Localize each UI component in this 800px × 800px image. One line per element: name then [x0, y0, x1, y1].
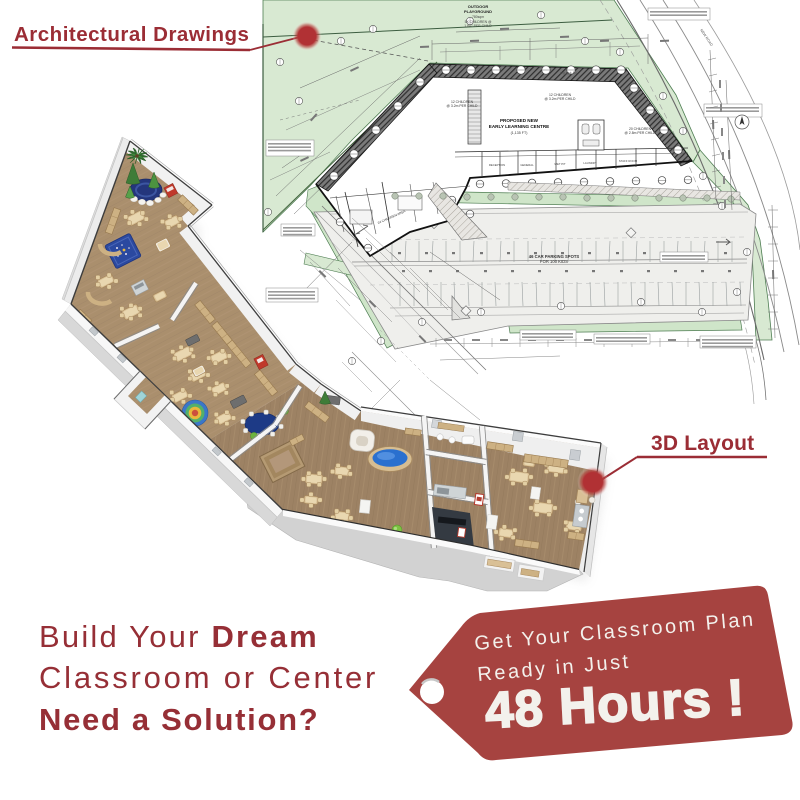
svg-text:WET PIT: WET PIT [554, 162, 566, 166]
svg-text:PRAM AV: PRAM AV [560, 70, 578, 76]
svg-text:Build Your Dream: Build Your Dream [39, 619, 319, 654]
svg-text:PROPOSED NEW: PROPOSED NEW [500, 118, 539, 123]
svg-text:Classroom or Center: Classroom or Center [39, 660, 378, 695]
svg-text:1,847 PER CHILD: 1,847 PER CHILD [464, 24, 492, 28]
svg-text:@ 3.2m PER CHILD: @ 3.2m PER CHILD [447, 104, 479, 108]
svg-text:(1,135 FT): (1,135 FT) [511, 131, 528, 135]
svg-text:Architectural Drawings: Architectural Drawings [14, 23, 249, 46]
svg-text:NEW ROAD: NEW ROAD [699, 28, 714, 47]
svg-text:3D Layout: 3D Layout [651, 432, 754, 455]
svg-text:@ 3.2m PER CHILD: @ 3.2m PER CHILD [545, 97, 577, 101]
svg-text:FOR 100 KIDS: FOR 100 KIDS [540, 259, 568, 264]
svg-text:RECEPTION: RECEPTION [489, 163, 505, 167]
svg-text:Need a Solution?: Need a Solution? [39, 702, 319, 737]
svg-text:PLAYGROUND: PLAYGROUND [464, 9, 492, 14]
svg-text:EARLY LEARNING CENTRE: EARLY LEARNING CENTRE [489, 124, 550, 129]
svg-text:STAFF ROOM: STAFF ROOM [619, 159, 638, 163]
svg-text:LAUNDRY: LAUNDRY [583, 161, 596, 165]
svg-text:GENERAL: GENERAL [520, 163, 534, 167]
svg-text:@ 2.8m PER CHILD: @ 2.8m PER CHILD [625, 131, 657, 135]
svg-text:780sqm: 780sqm [472, 15, 484, 19]
